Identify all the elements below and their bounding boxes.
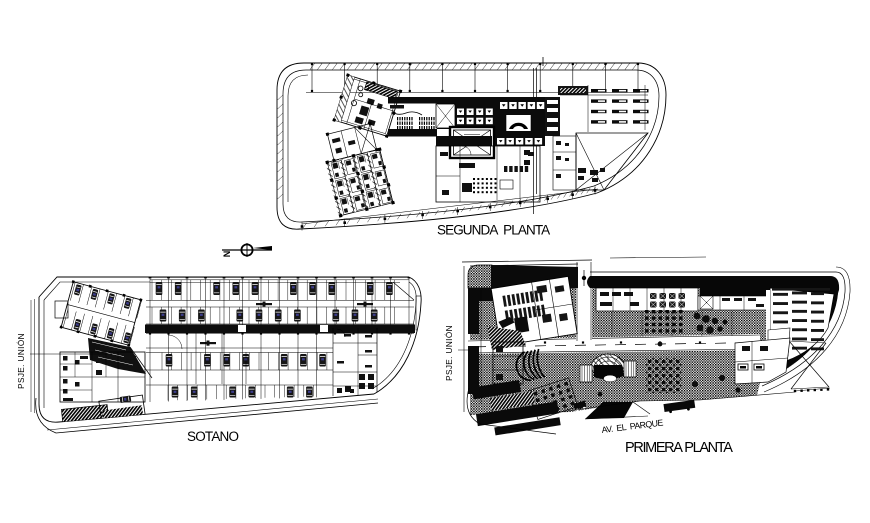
- svg-text:PRIMERA PLANTA: PRIMERA PLANTA: [625, 440, 733, 456]
- svg-text:N: N: [222, 251, 232, 258]
- svg-text:PSJE. UNIÓN: PSJE. UNIÓN: [16, 333, 26, 389]
- svg-text:PSJE. UNIÓN: PSJE. UNIÓN: [444, 325, 454, 381]
- svg-text:SOTANO: SOTANO: [187, 429, 239, 444]
- svg-text:SEGUNDA PLANTA: SEGUNDA PLANTA: [437, 223, 550, 238]
